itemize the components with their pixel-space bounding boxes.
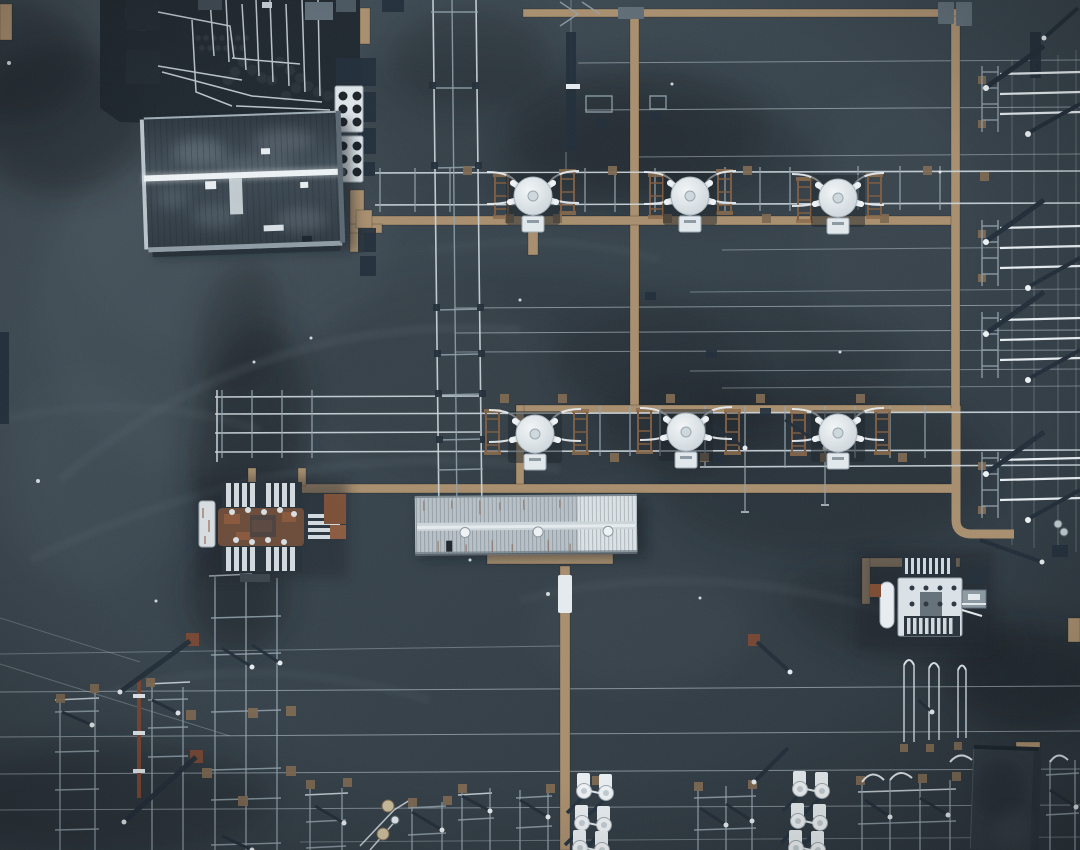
photo-effects	[0, 0, 1080, 850]
substation-scene: Drone photo looking straight down at a p…	[0, 0, 1080, 850]
substation-aerial-photo: Aerial top-down view of an electrical su…	[0, 0, 1080, 850]
